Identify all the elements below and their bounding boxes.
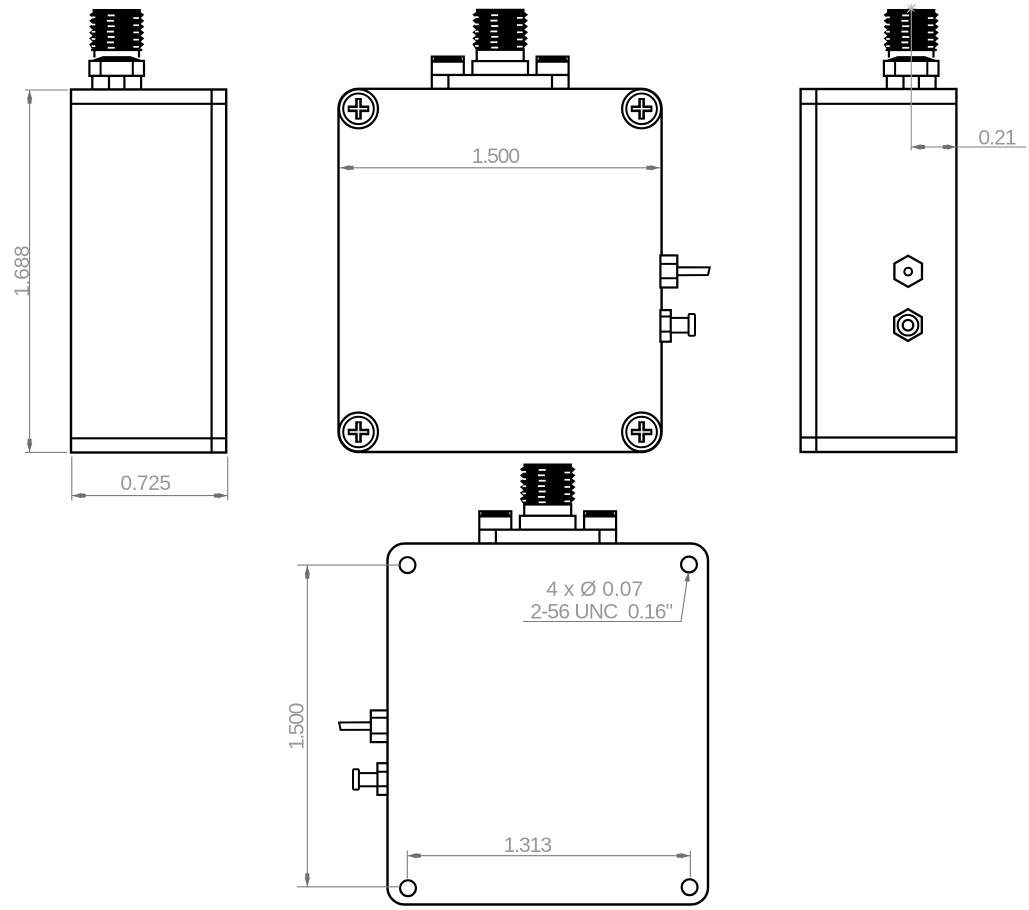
svg-text:2-56 UNC 0.16": 2-56 UNC 0.16" xyxy=(530,600,672,623)
svg-text:1.688: 1.688 xyxy=(11,246,34,297)
svg-text:4 x Ø 0.07: 4 x Ø 0.07 xyxy=(546,578,643,601)
svg-text:1.500: 1.500 xyxy=(472,145,519,168)
svg-text:1.313: 1.313 xyxy=(504,834,552,857)
svg-text:0.21: 0.21 xyxy=(978,127,1015,150)
svg-text:1.500: 1.500 xyxy=(285,703,308,749)
svg-text:0.725: 0.725 xyxy=(120,472,170,495)
